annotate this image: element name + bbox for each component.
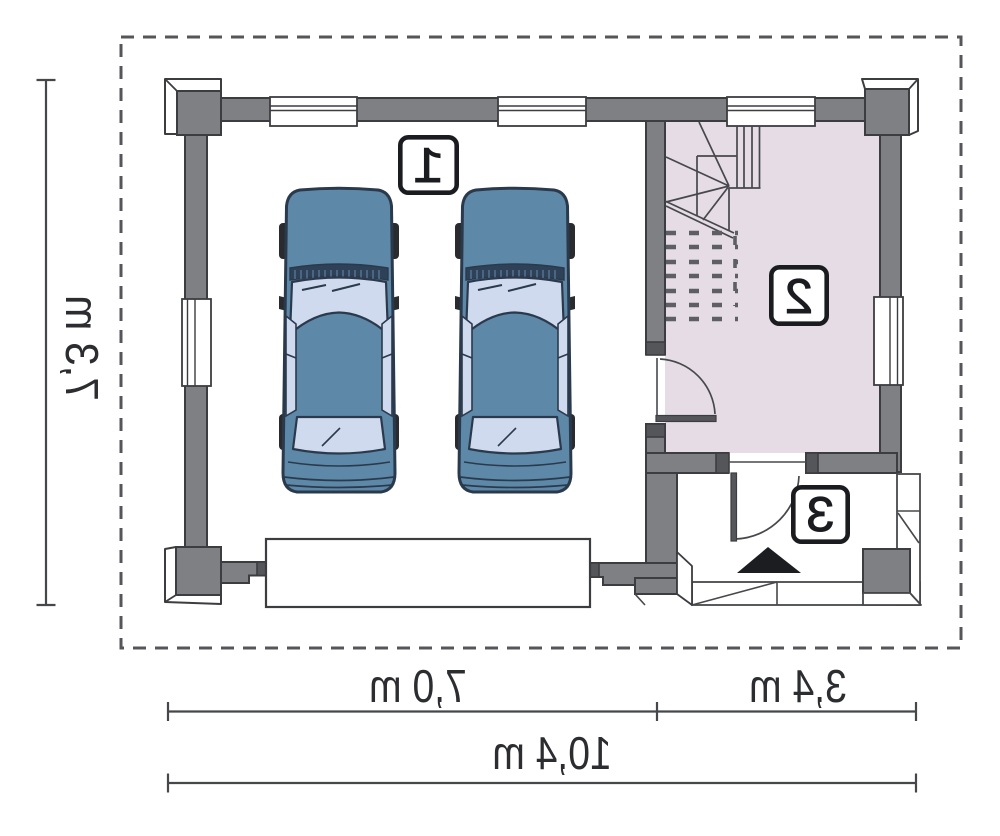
- svg-text:3,4 m: 3,4 m: [749, 661, 847, 713]
- svg-text:7,0 m: 7,0 m: [369, 661, 467, 713]
- svg-text:3: 3: [805, 490, 836, 547]
- svg-text:10,4 m: 10,4 m: [492, 728, 611, 780]
- svg-text:7,3 m: 7,3 m: [56, 295, 107, 401]
- svg-text:1: 1: [413, 141, 444, 198]
- svg-text:2: 2: [784, 272, 815, 329]
